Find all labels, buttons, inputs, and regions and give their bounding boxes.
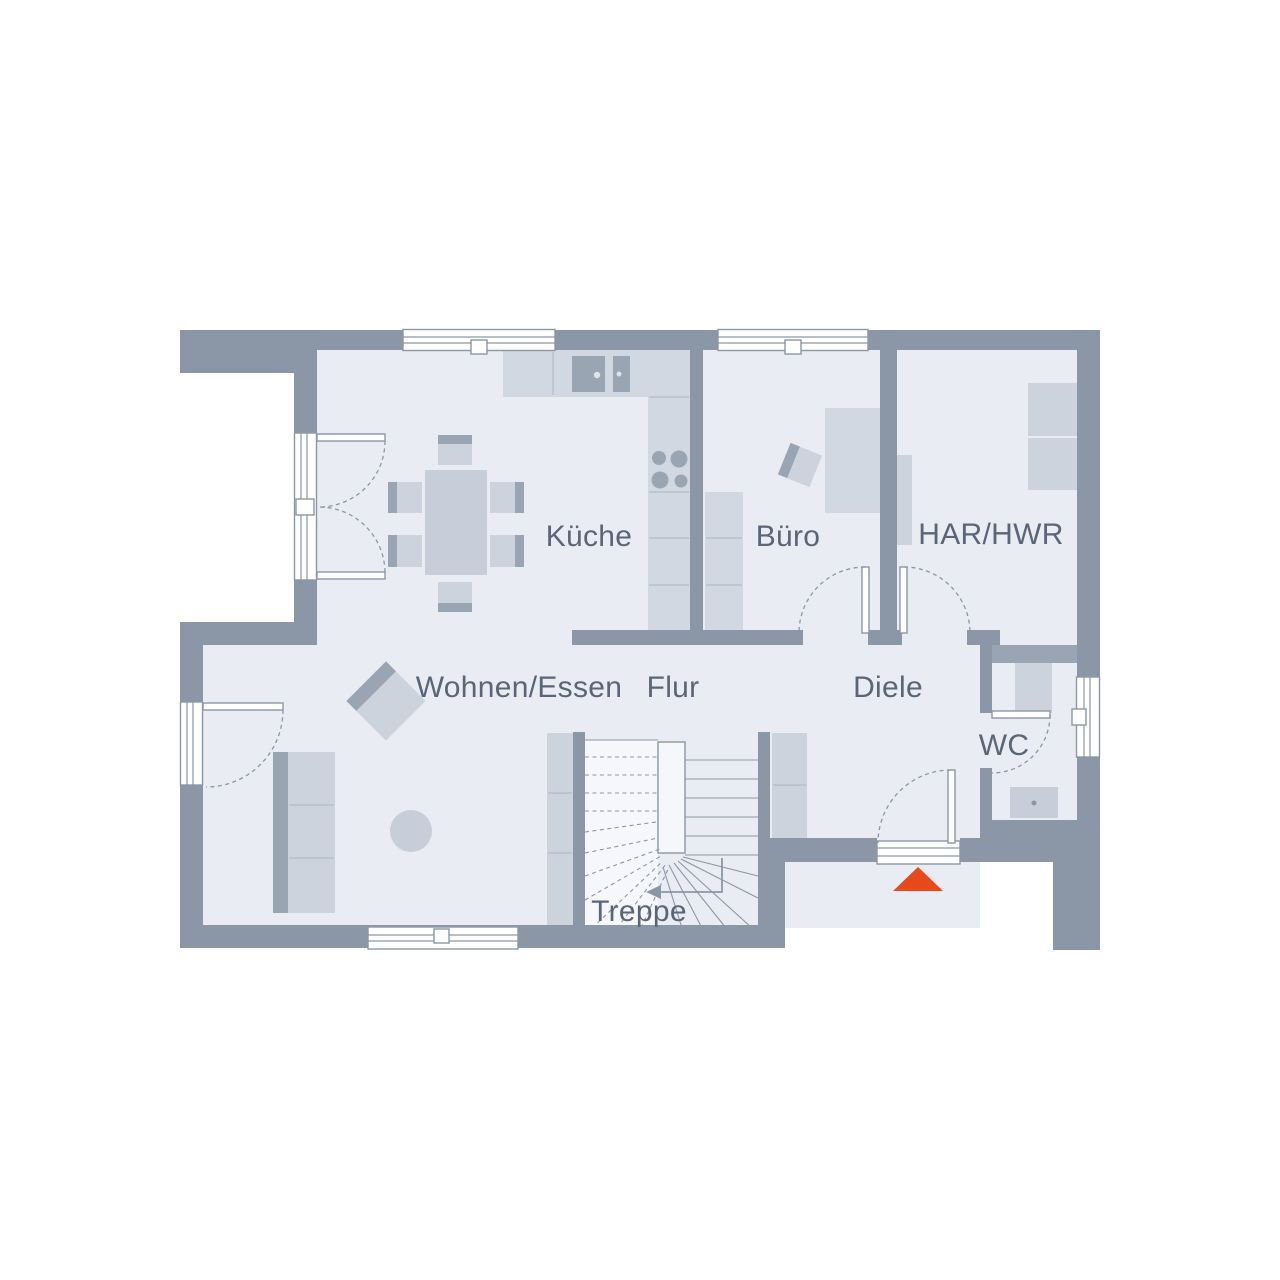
dining-chair [490, 482, 524, 513]
utility-cabinet [895, 455, 912, 545]
office-cabinet [705, 492, 743, 633]
window-wc [1072, 677, 1100, 757]
floor-plan: Küche Büro HAR/HWR Wohnen/Essen Flur Die… [0, 0, 1280, 1280]
sofa [273, 752, 335, 913]
dining-chair [438, 435, 472, 465]
dryer-icon [1028, 438, 1077, 490]
desk [825, 408, 880, 513]
washbasin-icon [1010, 787, 1058, 818]
room-label-wc: WC [979, 729, 1030, 762]
kitchen-sink [572, 356, 630, 392]
dining-chair [388, 482, 422, 513]
dining-chair [438, 582, 472, 612]
window-top-right [718, 330, 868, 355]
window-bottom [368, 927, 518, 949]
room-label-treppe: Treppe [591, 895, 687, 928]
sideboard [772, 733, 807, 838]
floor-plan-page: Küche Büro HAR/HWR Wohnen/Essen Flur Die… [0, 0, 1280, 1280]
window-top-left [403, 330, 555, 355]
washing-machine-icon [1028, 383, 1077, 436]
room-label-diele: Diele [853, 671, 923, 704]
coffee-table [390, 810, 432, 852]
shelf [547, 733, 573, 927]
dining-chair [388, 535, 422, 567]
room-label-har-hwr: HAR/HWR [918, 518, 1063, 551]
stair-void [658, 742, 685, 853]
room-label-buero: Büro [756, 520, 821, 553]
room-label-kueche: Küche [546, 520, 633, 553]
dining-chair [490, 535, 524, 567]
dining-table [425, 470, 487, 575]
room-label-wohnen-essen: Wohnen/Essen [416, 671, 623, 704]
room-label-flur: Flur [647, 671, 700, 704]
